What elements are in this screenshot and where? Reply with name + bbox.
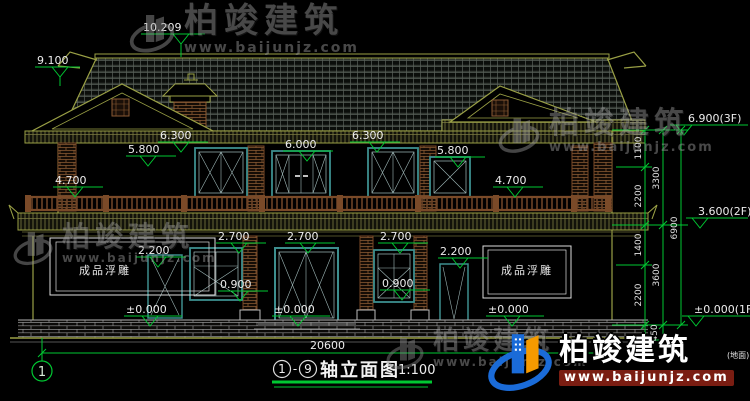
window-1f-right xyxy=(374,250,414,302)
dim-label: 6.000 xyxy=(285,138,317,151)
dim-label: ±0.000 xyxy=(488,303,529,316)
dim-label: 2.200 xyxy=(138,244,170,257)
dim-label: 3300 xyxy=(652,166,662,189)
gable-vent xyxy=(492,100,508,116)
ground-level-note: (地面) xyxy=(727,350,749,361)
title-axis-end: 9 xyxy=(304,362,312,376)
door-1f-right xyxy=(440,264,468,322)
relief-panel-label: 成品浮雕 xyxy=(501,263,553,277)
dim-label: 2.200 xyxy=(440,245,472,258)
dim-label: ±0.000(1F) xyxy=(694,303,750,316)
title-axis-separator: - xyxy=(293,362,297,376)
dim-label: 3.600(2F) xyxy=(698,205,750,218)
relief-panel-label: 成品浮雕 xyxy=(79,263,131,277)
window-2f-left xyxy=(195,148,247,197)
dim-label: 5.800 xyxy=(128,143,160,156)
relief-panel-right: 成品浮雕 xyxy=(483,246,571,298)
axis-bubble: 1 xyxy=(32,361,52,381)
dim-label: 0.900 xyxy=(382,277,414,290)
dim-label: 4.700 xyxy=(495,174,527,187)
dim-label: 2.700 xyxy=(218,230,250,243)
baijun-logo-color-icon xyxy=(487,326,553,396)
dim-label: 20600 xyxy=(310,339,345,352)
dim-label: ±0.000 xyxy=(126,303,167,316)
window-2f-mid xyxy=(368,148,418,197)
window-2f-right xyxy=(430,157,470,197)
dim-label: 2200 xyxy=(634,184,644,207)
dim-label: ±0.000 xyxy=(274,303,315,316)
building-elevation: 成品浮雕 成品浮雕 xyxy=(9,52,657,342)
logo-url: www.baijunjz.com xyxy=(559,370,734,386)
company-logo: 柏竣建筑 www.baijunjz.com xyxy=(487,326,734,396)
dim-label: 2.700 xyxy=(380,230,412,243)
logo-brand: 柏竣建筑 xyxy=(559,336,734,366)
dim-label: 3600 xyxy=(652,263,662,286)
dim-label: 6.300 xyxy=(160,129,192,142)
dim-label: 1100 xyxy=(634,136,644,159)
dim-label: 6.900(3F) xyxy=(688,112,741,125)
dim-label: 9.100 xyxy=(37,54,69,67)
dim-label: 5.800 xyxy=(437,144,469,157)
title-block: 1 - 9 轴立面图 1:100 xyxy=(274,359,436,381)
dim-label: 10.209 xyxy=(143,21,182,34)
dim-label: 0.900 xyxy=(220,278,252,291)
cad-elevation-canvas: 成品浮雕 成品浮雕 1 xyxy=(0,0,750,401)
dim-label: 2.700 xyxy=(287,230,319,243)
balcony-door xyxy=(272,151,330,197)
dim-label: 6.300 xyxy=(352,129,384,142)
drawing-title: 轴立面图 xyxy=(320,359,400,381)
dim-label: 2200 xyxy=(634,283,644,306)
eave-band xyxy=(25,131,645,143)
window-1f-left xyxy=(190,248,242,300)
axis-bubble-number: 1 xyxy=(38,365,46,380)
dim-label: 1400 xyxy=(634,233,644,256)
drawing-scale: 1:100 xyxy=(398,363,435,378)
gable-vent xyxy=(112,99,129,116)
balcony-railing xyxy=(25,195,612,212)
dim-label: 6900 xyxy=(670,216,680,239)
title-axis-start: 1 xyxy=(278,362,286,376)
dim-label: 4.700 xyxy=(55,174,87,187)
